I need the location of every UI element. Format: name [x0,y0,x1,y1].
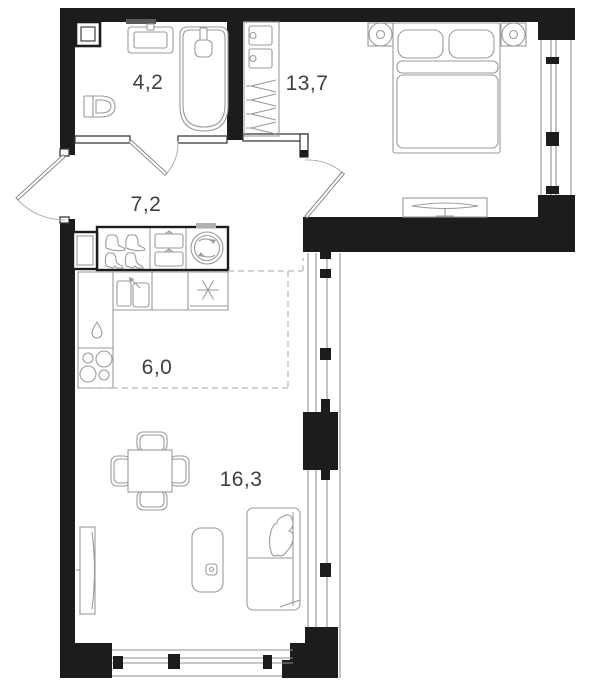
sink-icon [128,24,173,53]
wall-bedroom-bottom [303,217,575,252]
table-lamp-left [369,23,392,46]
hallway-storage: 7,2 [73,193,228,270]
storage-box-icon [249,26,272,68]
throw-blanket-icon [270,515,294,556]
dining-table-icon [111,432,189,510]
cooktop-burners-icon [80,351,112,382]
wardrobe [244,22,279,136]
storage-handle [196,223,216,228]
sofa-icon [247,508,300,610]
partition-bath-right [178,136,227,143]
room-bathroom: 4,2 [76,19,228,131]
table-lamp-right [502,23,525,46]
wall-left-lower [60,219,75,643]
dish-rack-icon [117,281,131,306]
wall-pier-right [303,412,338,470]
toilet-icon [84,96,115,117]
entrance-door [16,155,65,220]
wall-left-upper [60,8,75,155]
entrance-jamb-top [60,149,69,156]
room-living: 16,3 [76,432,300,614]
vent-star-icon [197,281,219,300]
bathroom-door-leaf [129,140,167,175]
window-living-bottom [112,650,293,676]
bedroom-door [305,160,344,218]
kitchen-sink-icon [117,277,149,307]
wall-corner-top-right [538,22,575,40]
living-area-label: 16,3 [220,468,263,491]
wall-corner-bottom-left [60,643,112,678]
bathtub-icon [180,27,228,131]
hallway-area-label: 7,2 [131,193,162,216]
wall-bath-divider [227,20,243,140]
wardrobe-hangers-icon [246,80,276,134]
bedroom-door-swing [305,160,342,172]
bedroom-door-jamb [300,150,308,157]
room-kitchen: 6,0 [78,258,303,388]
kitchen-zone-dashed-boundary [78,258,303,388]
entrance-door-leaf [16,155,65,200]
kitchen-area-label: 6,0 [142,356,173,379]
wall-corner-bottom-right [282,627,338,678]
partition-under-wardrobe [243,134,308,141]
window-bedroom-right [541,40,571,195]
floor-plan: 4,2 [0,0,603,700]
bathroom-area-label: 4,2 [133,71,164,94]
partition-bath-left [75,136,130,143]
bathroom-door-swing [167,141,178,173]
room-bedroom: 13,7 [286,23,526,217]
tv-stand-icon [403,198,487,217]
bedroom-area-label: 13,7 [286,72,329,95]
bathroom-door [129,140,178,175]
bedroom-door-leaf [305,172,344,218]
water-drop-icon [92,322,102,338]
double-bed-icon [393,23,500,153]
entrance-door-swing [18,200,65,220]
vent-shaft-icon [76,22,100,46]
mirror-icon [126,19,156,24]
media-console-icon [192,528,223,592]
partitions [60,134,308,223]
floor-plan-drawing: 4,2 [0,0,603,700]
tv-icon [76,527,95,614]
table-top [128,450,172,492]
